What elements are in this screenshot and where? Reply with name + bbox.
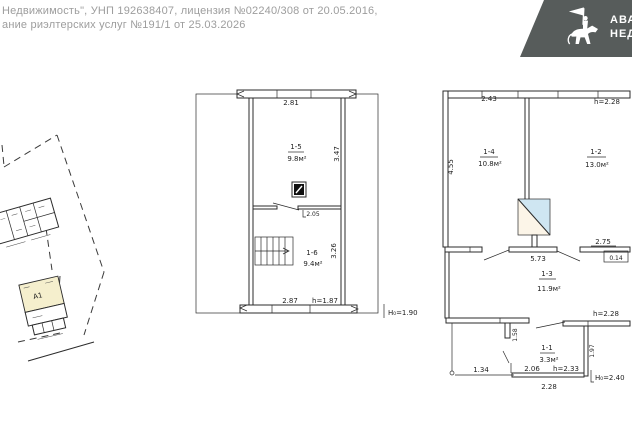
floor-h-top-right: h=2.28 (594, 98, 620, 106)
floor-dim-wall-right: 2.75 (595, 238, 611, 246)
floor-plans-drawing: А1 (0, 0, 632, 425)
site-building-lower: А1 (19, 276, 71, 341)
attic-ceiling-height: H₀=1.90 (388, 309, 418, 317)
attic-h-bottom: h=1.87 (312, 297, 338, 305)
floor-wall-thickness: 0.14 (609, 255, 623, 262)
first-floor-plan: 2.43 h=2.28 4.55 1-4 10.8м² 1-2 13.0м² 5… (443, 91, 630, 391)
room-1-4-number: 1-4 (483, 148, 495, 156)
room-1-5-area: 9.8м² (287, 155, 306, 163)
floor-dim-right-vert: 1.97 (589, 344, 596, 358)
attic-dim-right-bottom: 3.26 (330, 243, 338, 259)
room-1-3-area: 11.9м² (537, 285, 561, 293)
floor-dim-stub: 1.58 (512, 328, 519, 342)
floor-ceiling-height: H₀=2.40 (595, 374, 625, 382)
room-1-1-number: 1-1 (541, 344, 552, 352)
floor-door-bottom-height: h=2.33 (553, 365, 579, 373)
floor-dim-bottom-left: 1.34 (473, 366, 489, 374)
room-1-3-number: 1-3 (541, 270, 552, 278)
attic-dim-bottom: 2.87 (282, 297, 298, 305)
floor-dim-top-left: 2.43 (481, 95, 497, 103)
attic-dim-right-top: 3.47 (333, 146, 341, 162)
floor-h-mid-right: h=2.28 (593, 310, 619, 318)
room-1-5-number: 1-5 (290, 143, 301, 151)
stove (518, 199, 550, 247)
stairs (255, 237, 293, 265)
room-1-4-area: 10.8м² (478, 160, 502, 168)
site-plan: А1 (0, 135, 104, 361)
room-1-6-number: 1-6 (306, 249, 318, 257)
attic-plan: 2.81 1-5 9.8м² 3.47 2.05 1-6 9.4м² 3.26 … (196, 90, 418, 318)
room-1-2-area: 13.0м² (585, 161, 609, 169)
floor-dim-bottom-center: 2.28 (541, 383, 557, 391)
room-1-1-area: 3.3м² (539, 356, 558, 364)
floor-dim-left: 4.55 (447, 159, 455, 175)
room-1-6-area: 9.4м² (303, 260, 322, 268)
floor-dim-wall-center: 5.73 (530, 255, 546, 263)
room-1-2-number: 1-2 (590, 148, 601, 156)
site-building-upper (0, 198, 60, 249)
scanned-floorplan-sheet: Недвижимость", УНП 192638407, лицензия №… (0, 0, 632, 425)
attic-dim-top: 2.81 (283, 99, 299, 107)
floor-door-bottom-width: 2.06 (524, 365, 540, 373)
attic-door-dim: 2.05 (306, 211, 320, 218)
